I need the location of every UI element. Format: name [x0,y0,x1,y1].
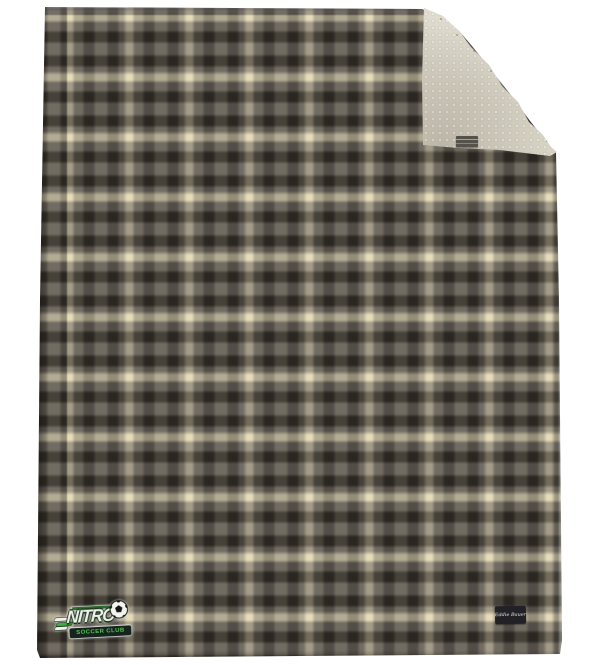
brand-label: Eddie Bauer [495,606,526,625]
soccer-ball-icon [109,599,129,619]
product-image: NITRO SOCCER CLUB Eddie Bauer [0,0,600,665]
nitro-logo: NITRO SOCCER CLUB [51,597,143,650]
sherpa-folded-corner [416,4,564,162]
logo-subtitle: SOCCER CLUB [76,628,125,636]
care-tag [456,136,478,147]
brand-label-text: Eddie Bauer [495,612,527,618]
sherpa-edge-flecks [440,18,442,20]
logo-banner: SOCCER CLUB [69,625,131,638]
logo-title: NITRO [66,606,115,626]
